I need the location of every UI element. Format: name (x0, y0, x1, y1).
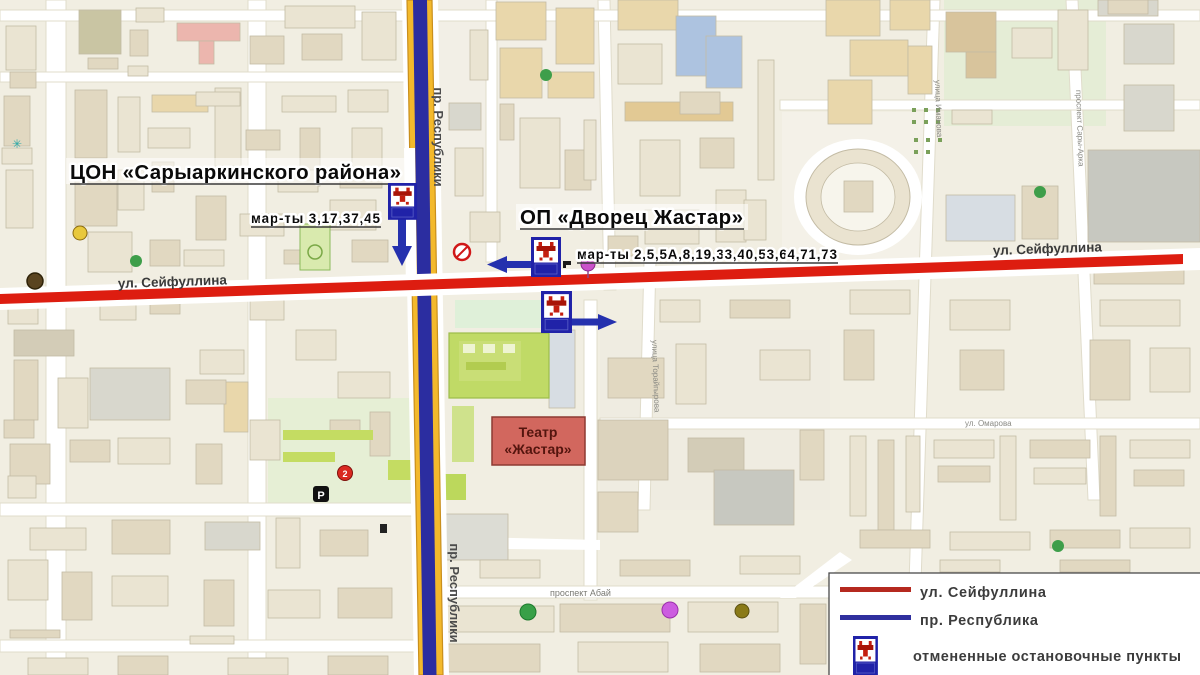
svg-text:Р: Р (317, 490, 324, 502)
svg-text:пр. Республика: пр. Республика (920, 613, 1039, 629)
svg-text:мар-ты 3,17,37,45: мар-ты 3,17,37,45 (251, 211, 380, 226)
svg-text:мар-ты 2,5,5А,8,19,33,40,53,64: мар-ты 2,5,5А,8,19,33,40,53,64,71,73 (577, 247, 837, 262)
svg-text:ЦОН «Сарыаркинского района»: ЦОН «Сарыаркинского района» (70, 161, 401, 184)
svg-text:отмененные остановочные пункты: отмененные остановочные пункты (913, 649, 1181, 665)
svg-text:пр. Республики: пр. Республики (447, 543, 462, 642)
svg-text:Театр: Театр (519, 424, 558, 440)
svg-text:ул. Омарова: ул. Омарова (965, 419, 1012, 428)
svg-text:ул. Сейфуллина: ул. Сейфуллина (920, 585, 1047, 601)
svg-text:✳: ✳ (12, 137, 22, 151)
svg-text:«Жастар»: «Жастар» (504, 441, 571, 457)
svg-text:пр. Республики: пр. Республики (431, 87, 446, 186)
svg-text:проспект Абай: проспект Абай (550, 588, 611, 598)
svg-text:2: 2 (342, 469, 347, 479)
svg-text:ОП «Дворец Жастар»: ОП «Дворец Жастар» (520, 206, 743, 229)
